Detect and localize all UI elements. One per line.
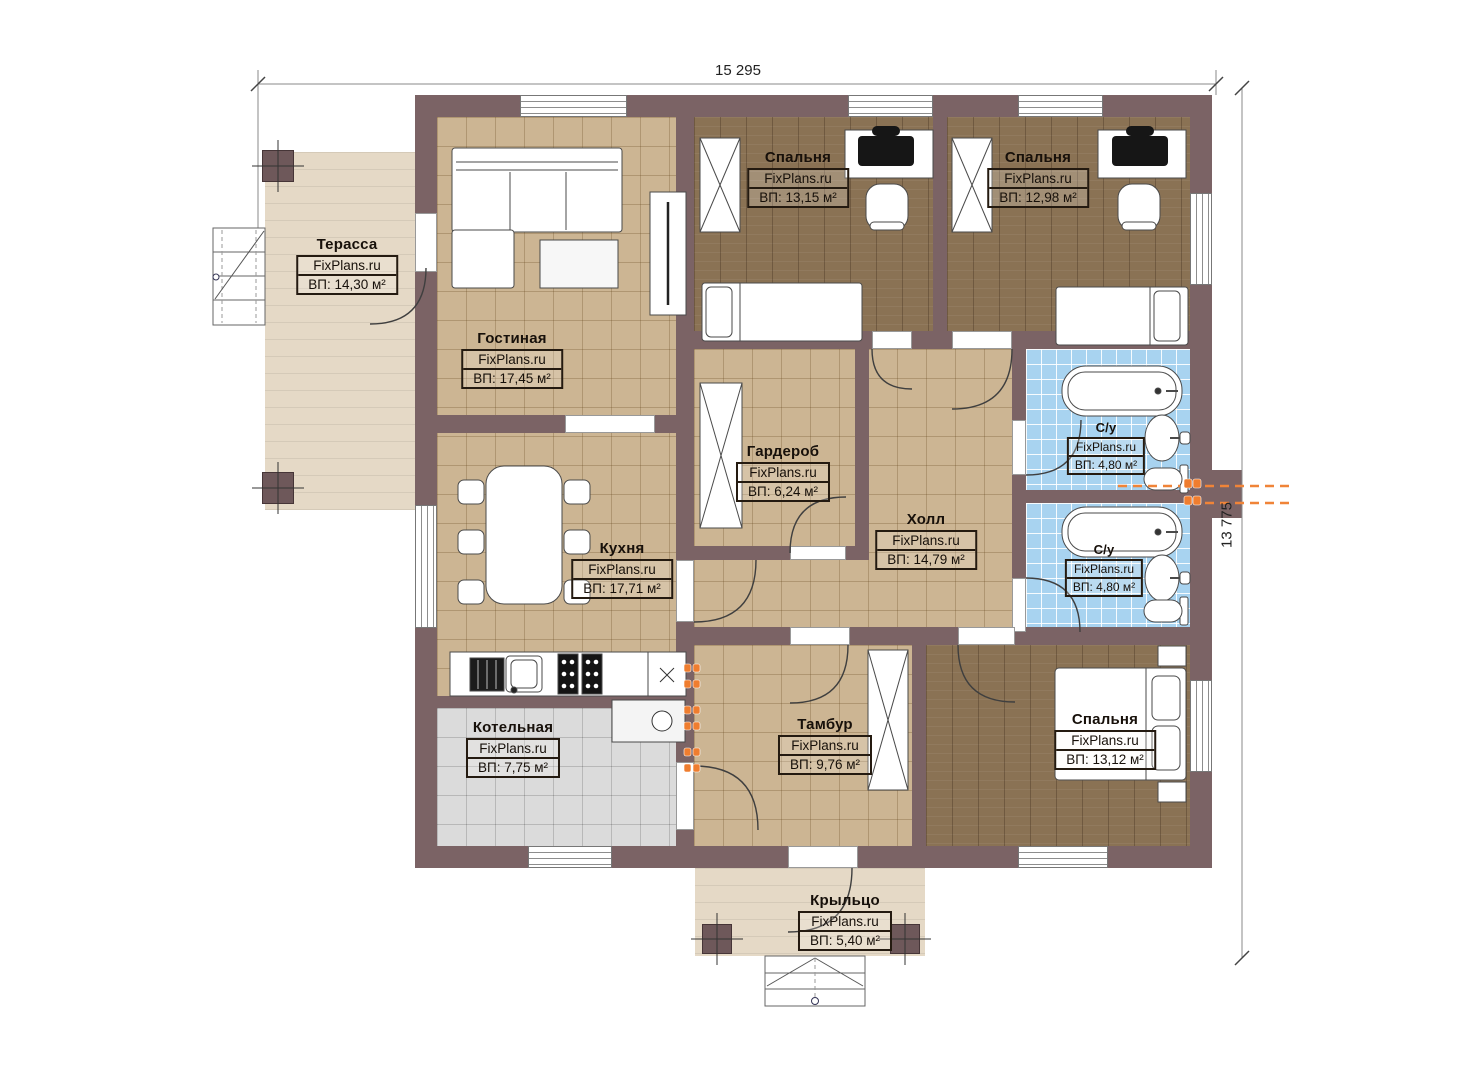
window-bedroom3-right (1190, 680, 1212, 772)
wall-h2a (437, 415, 565, 433)
room-label-wardrobe: Гардероб FixPlans.ru ВП: 6,24 м² (736, 443, 830, 502)
door-vestibule (790, 627, 850, 645)
window-kitchen-left (415, 505, 437, 628)
room-area: ВП: 14,30 м² (298, 276, 396, 293)
watermark: FixPlans.ru (463, 351, 561, 370)
watermark: FixPlans.ru (780, 737, 870, 756)
wall-h3c (1015, 627, 1190, 645)
room-area: ВП: 6,24 м² (738, 483, 828, 500)
room-label-living: Гостиная FixPlans.ru ВП: 17,45 м² (461, 330, 563, 389)
door-boiler (676, 762, 694, 830)
room-area: ВП: 5,40 м² (800, 932, 890, 949)
window-bedroom3-bottom (1018, 846, 1108, 868)
wall-v1b (676, 622, 694, 762)
room-area: ВП: 17,71 м² (573, 580, 671, 597)
room-name: Холл (875, 511, 977, 528)
terrace-column-bottom (262, 472, 294, 504)
window-boiler-bottom (528, 846, 612, 868)
porch-column-right (890, 924, 920, 954)
porch-stairs (765, 956, 865, 1006)
room-name: Спальня (987, 149, 1089, 166)
wall-v4 (933, 117, 947, 331)
room-label-bath2: С/у FixPlans.ru ВП: 4,80 м² (1065, 542, 1143, 597)
label-box: FixPlans.ru ВП: 7,75 м² (466, 738, 560, 778)
watermark: FixPlans.ru (298, 257, 396, 276)
room-name: Гардероб (736, 443, 830, 460)
room-name: Крыльцо (798, 892, 892, 909)
watermark: FixPlans.ru (749, 170, 847, 189)
wall-h1a (694, 331, 872, 349)
wall-h3a (694, 627, 790, 645)
room-area: ВП: 13,15 м² (749, 189, 847, 206)
room-name: Гостиная (461, 330, 563, 347)
label-box: FixPlans.ru ВП: 5,40 м² (798, 911, 892, 951)
wall-h4 (1026, 490, 1190, 503)
room-label-bedroom1: Спальня FixPlans.ru ВП: 13,15 м² (747, 149, 849, 208)
watermark: FixPlans.ru (877, 532, 975, 551)
label-box: FixPlans.ru ВП: 9,76 м² (778, 735, 872, 775)
label-box: FixPlans.ru ВП: 13,15 м² (747, 168, 849, 208)
wall-v1c (676, 830, 694, 846)
watermark: FixPlans.ru (989, 170, 1087, 189)
door-bath1 (1012, 420, 1026, 475)
label-box: FixPlans.ru ВП: 4,80 м² (1067, 437, 1145, 475)
terrace-column-top (262, 150, 294, 182)
door-kitchen-hall (676, 560, 694, 622)
wall-v3b (1012, 475, 1026, 578)
label-box: FixPlans.ru ВП: 4,80 м² (1065, 559, 1143, 597)
room-area: ВП: 13,12 м² (1056, 751, 1154, 768)
opening-living-kitchen (565, 415, 655, 433)
room-label-bedroom2: Спальня FixPlans.ru ВП: 12,98 м² (987, 149, 1089, 208)
room-area: ВП: 9,76 м² (780, 756, 870, 773)
watermark: FixPlans.ru (1069, 439, 1143, 457)
label-box: FixPlans.ru ВП: 13,12 м² (1054, 730, 1156, 770)
watermark: FixPlans.ru (738, 464, 828, 483)
room-label-bedroom3: Спальня FixPlans.ru ВП: 13,12 м² (1054, 711, 1156, 770)
wall-h5 (437, 696, 676, 708)
room-label-hall: Холл FixPlans.ru ВП: 14,79 м² (875, 511, 977, 570)
terrace-stairs (213, 228, 265, 325)
room-label-terrace: Терасса FixPlans.ru ВП: 14,30 м² (296, 236, 398, 295)
watermark: FixPlans.ru (1056, 732, 1154, 751)
room-area: ВП: 7,75 м² (468, 759, 558, 776)
door-terrace (415, 213, 437, 272)
room-name: Котельная (466, 719, 560, 736)
dimension-height: 13 775 (1219, 502, 1236, 548)
wall-h2b (655, 415, 694, 433)
door-porch (788, 846, 858, 868)
label-box: FixPlans.ru ВП: 14,30 м² (296, 255, 398, 295)
wall-v5 (912, 645, 926, 846)
room-area: ВП: 4,80 м² (1069, 457, 1143, 473)
wall-h6a (694, 546, 790, 560)
watermark: FixPlans.ru (468, 740, 558, 759)
door-bath2 (1012, 578, 1026, 632)
window-bedroom2-right (1190, 193, 1212, 285)
label-box: FixPlans.ru ВП: 14,79 м² (875, 530, 977, 570)
room-label-porch: Крыльцо FixPlans.ru ВП: 5,40 м² (798, 892, 892, 951)
room-label-kitchen: Кухня FixPlans.ru ВП: 17,71 м² (571, 540, 673, 599)
wall-v3a (1012, 349, 1026, 420)
window-living-top (520, 95, 627, 117)
wall-exterior-left (415, 95, 437, 868)
floor-plan: 15 295 13 775 Терасса FixPlans.ru ВП: 14… (0, 0, 1473, 1080)
porch-column-left (702, 924, 732, 954)
room-name: Тамбур (778, 716, 872, 733)
label-box: FixPlans.ru ВП: 6,24 м² (736, 462, 830, 502)
room-name: С/у (1065, 542, 1143, 557)
watermark: FixPlans.ru (800, 913, 890, 932)
room-name: Спальня (1054, 711, 1156, 728)
watermark: FixPlans.ru (573, 561, 671, 580)
room-name: Терасса (296, 236, 398, 253)
wall-h3b (850, 627, 958, 645)
label-box: FixPlans.ru ВП: 12,98 м² (987, 168, 1089, 208)
label-box: FixPlans.ru ВП: 17,45 м² (461, 349, 563, 389)
label-box: FixPlans.ru ВП: 17,71 м² (571, 559, 673, 599)
room-label-vestibule: Тамбур FixPlans.ru ВП: 9,76 м² (778, 716, 872, 775)
door-bedroom1 (872, 331, 912, 349)
room-area: ВП: 17,45 м² (463, 370, 561, 387)
door-wardrobe (790, 546, 846, 560)
room-area: ВП: 12,98 м² (989, 189, 1087, 206)
wall-v1a (676, 117, 694, 560)
window-bedroom1-top (848, 95, 933, 117)
room-area: ВП: 4,80 м² (1067, 579, 1141, 595)
watermark: FixPlans.ru (1067, 561, 1141, 579)
window-bedroom2-top (1018, 95, 1103, 117)
floor-terrace (265, 152, 415, 510)
room-area: ВП: 14,79 м² (877, 551, 975, 568)
wall-v2 (855, 349, 869, 560)
wall-h6b (846, 546, 855, 560)
dimension-width: 15 295 (715, 62, 761, 79)
room-name: С/у (1067, 420, 1145, 435)
room-label-bath1: С/у FixPlans.ru ВП: 4,80 м² (1067, 420, 1145, 475)
wall-h1c (1012, 331, 1190, 349)
room-label-boiler: Котельная FixPlans.ru ВП: 7,75 м² (466, 719, 560, 778)
wall-h1b (912, 331, 952, 349)
room-name: Кухня (571, 540, 673, 557)
room-name: Спальня (747, 149, 849, 166)
door-bedroom2 (952, 331, 1012, 349)
door-bedroom3 (958, 627, 1015, 645)
